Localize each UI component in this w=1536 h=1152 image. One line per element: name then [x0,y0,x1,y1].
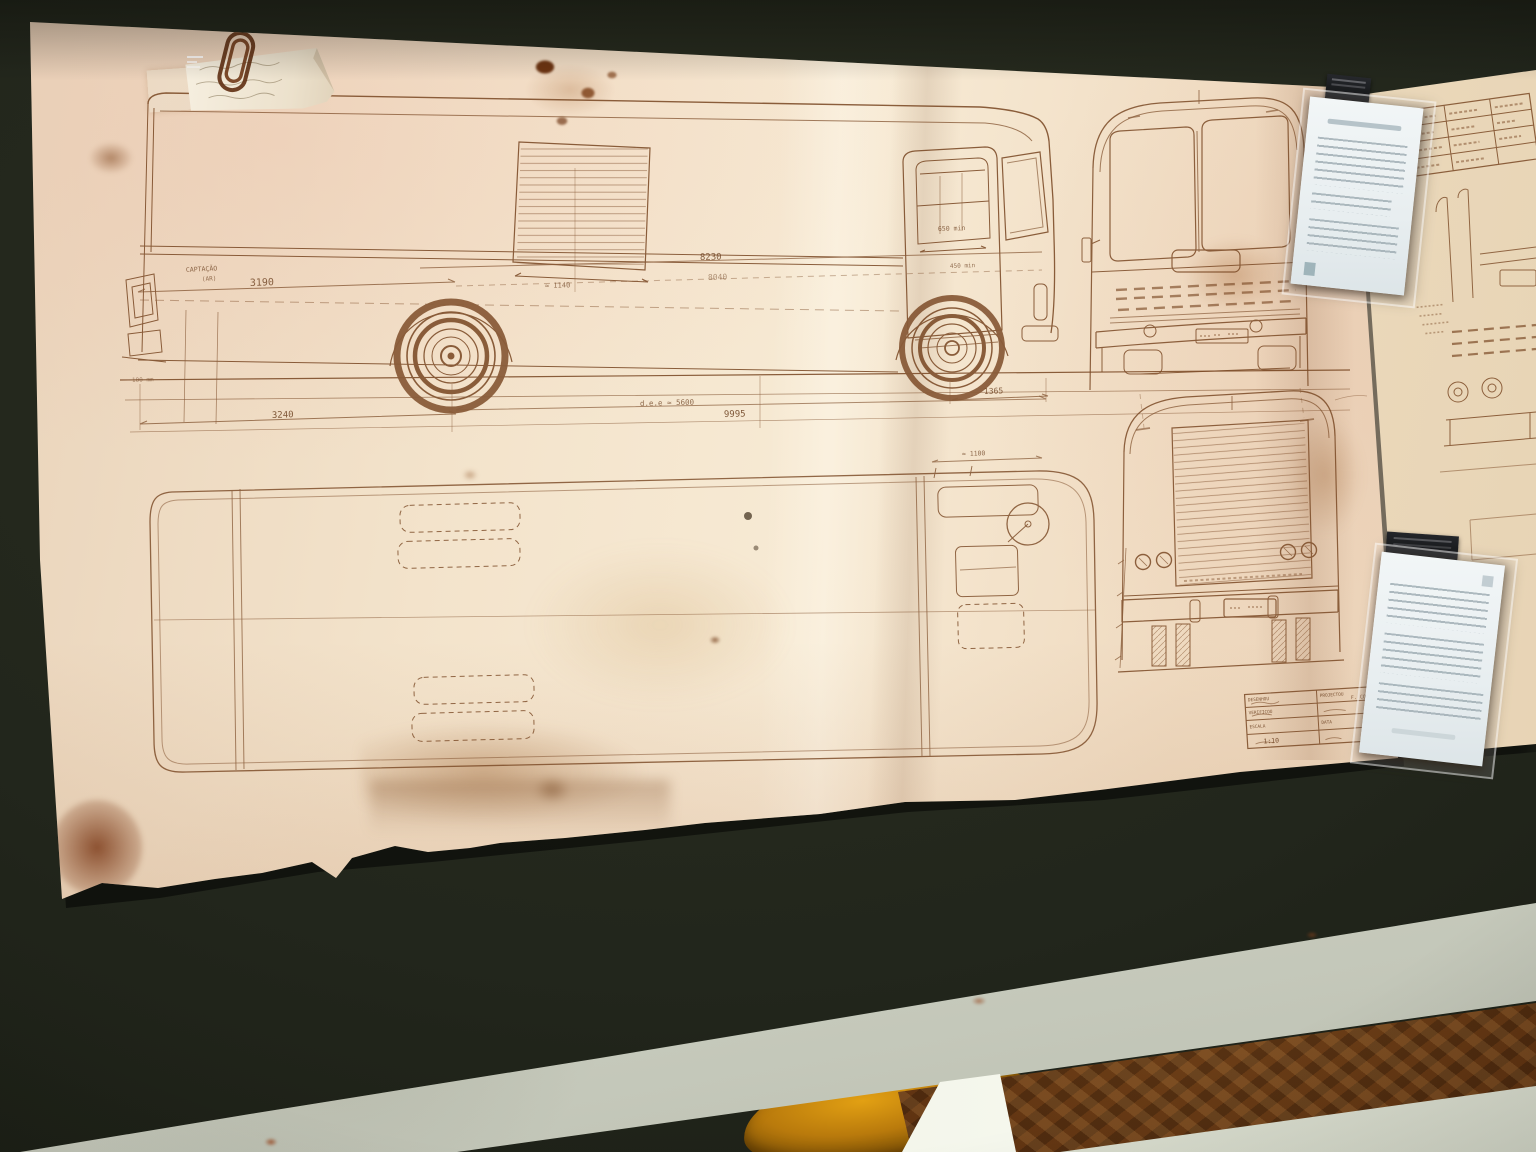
dim-3190: 3190 [250,277,274,289]
label-air-intake: CAPTAÇÃO [186,263,218,274]
dim-9995: 9995 [724,409,746,420]
engine-grille-louvres [1173,423,1312,585]
dim-450: 450 min [950,262,976,270]
support-stands [1152,618,1310,666]
bench-seats [398,502,535,741]
cab-door [903,147,1058,341]
dim-1140: ≈ 1140 [545,281,570,290]
info-card-top [1290,97,1423,296]
tb-scale-value: 1:10 [1263,737,1279,746]
louvre-door [513,142,650,282]
front-view-drawing [1082,90,1308,390]
tb-checked: VERIFICOU [1249,709,1273,716]
card-logo-text [1391,728,1455,740]
destination-box [1172,250,1240,272]
info-card-bottom [1359,552,1505,767]
card-paragraph [1376,682,1484,724]
card-paragraph [1380,632,1484,683]
front-grille [1116,281,1296,310]
card-title-line [1327,119,1401,132]
windscreen-side [1002,152,1048,240]
cab-plan [938,485,1049,649]
tb-drew: DESENHOU [1248,696,1270,703]
tb-date: DATA [1321,719,1332,726]
dim-dee: d.e.e ≈ 5600 [640,398,695,408]
front-wheel [902,298,1002,398]
card-corner-mark [1482,575,1494,587]
dim-650: 650 min [938,224,966,233]
rear-view-drawing [1115,388,1367,672]
photo-scene: 3190 8230 8040 ≈ 1140 d.e.e ≈ 5600 9995 … [0,0,1536,1152]
dim-3240: 3240 [272,410,294,421]
dim-8040: 8040 [708,272,728,282]
card-logo-mark [1303,262,1315,276]
dim-1100: ≈ 1100 [962,449,986,458]
label-air-intake-2: (AR) [202,275,217,283]
inventory-sticker [183,50,207,68]
dim-1365: 1365 [984,386,1004,396]
side-elevation-drawing [120,93,1350,432]
card-paragraph [1310,192,1391,216]
rear-wheel [397,302,505,410]
card-paragraph [1313,137,1408,194]
plan-view-drawing [150,456,1097,772]
dim-100: 100 mm [132,376,154,384]
card-paragraph [1386,583,1490,634]
card-paragraph [1306,218,1399,259]
dim-8230: 8230 [700,252,722,263]
tb-designed: PROJECTOU [1320,692,1344,699]
tb-scale: ESCALA [1249,723,1266,730]
